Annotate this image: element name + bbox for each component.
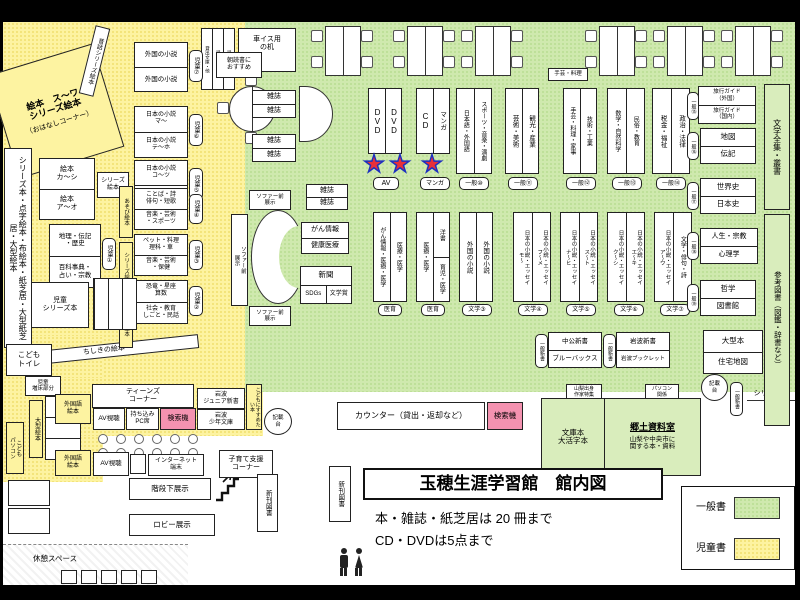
travel-guide-shelf: 旅行ガイド （外国） 旅行ガイド （国内） <box>698 86 756 124</box>
magazines: 雑誌 <box>253 148 295 162</box>
byo-pc-seat: 持ち込み PC席 <box>126 408 159 430</box>
cancer-info: がん情報 <box>302 223 348 238</box>
foreign-novels: 外国の小説 <box>135 43 187 67</box>
iwanami-shonen-bunko: 岩波 少年文庫 <box>197 409 245 430</box>
society-education-folktales: 社会・教育 しごと・民話 <box>135 302 187 324</box>
essays-ku-shi: 日本の小説・エッセイ ク〜シ <box>608 213 626 301</box>
general-16-tag: 一般⑯ <box>687 132 699 160</box>
picture-books-a-o: 絵本 ア〜オ <box>40 189 94 220</box>
morning-reading-recommend: 朝読書に おすすめ <box>216 52 262 78</box>
recommended-for-kids-strip: こどもにすすめたい本 <box>246 384 262 430</box>
locker <box>8 480 50 506</box>
foreign-novels: 外国の小説 <box>476 213 493 301</box>
general-13-tag: 一般⑬ <box>612 177 642 190</box>
new-books-display: 新刊図書 <box>257 474 278 532</box>
local-resources-title: 郷土資料室 <box>630 423 675 432</box>
dinosaur-constellation-math: 恐竜・星座 算数 <box>135 281 187 302</box>
words-poetry-haiku: ことば・詩 俳句・短歌 <box>135 189 187 209</box>
series-braille-picture-books-wall: シリーズ本・点字絵本・布絵本・紙芝居・大型紙芝居・大型絵本 <box>4 148 32 348</box>
children-2-tag: 児童② <box>189 286 203 316</box>
chair <box>585 56 597 68</box>
biographies: 伝記 <box>701 146 755 164</box>
rule-line-1: 本・雑誌・紙芝居は 20 冊まで <box>375 508 553 527</box>
chair <box>721 56 733 68</box>
medical-childcare-tag: 医育 <box>421 304 445 316</box>
reference-books-wall: 参考図書（図鑑・辞書など） <box>764 214 790 426</box>
literature-4-tag: 文学④ <box>518 304 548 316</box>
iwanami-booklet: 岩波ブックレット <box>617 350 669 368</box>
history-shelf: 世界史 日本史 <box>700 178 756 214</box>
essays-a-u: 日本の小説・エッセイ ア〜ウ <box>655 213 673 301</box>
western-books: 洋書 <box>434 213 450 257</box>
chuko-shinsho-shelf: 中公新書 ブルーバックス <box>548 332 602 368</box>
stool <box>170 434 180 444</box>
travel-guide-domestic: 旅行ガイド （国内） <box>699 105 755 124</box>
stool <box>152 434 162 444</box>
chair <box>511 30 523 42</box>
medical-medicine: 医療・医学 <box>417 213 433 301</box>
newspaper: 新聞 <box>301 267 351 285</box>
chair <box>461 56 473 68</box>
legend-children-label: 児童書 <box>696 543 726 555</box>
language-sports-shelf: 日本語・外国語 スポーツ・音楽・演劇 <box>456 88 492 174</box>
literature-6-tag: 文学⑥ <box>614 304 644 316</box>
kotoba-shelf: ことば・詩 俳句・短歌 音楽・芸術 ・スポーツ <box>134 188 188 230</box>
japanese-history: 日本史 <box>701 196 755 214</box>
chair <box>217 102 229 114</box>
chair <box>443 56 455 68</box>
children-3-tag: 児童③ <box>189 240 203 270</box>
large-picture-books-strip: 大型絵本 <box>29 400 43 458</box>
japanese-essay-shelf-4: 日本の小説・エッセイ モ〜 日本の小説・エッセイ フ〜メ <box>513 212 551 302</box>
cd-manga-shelf: CD マンガ <box>416 88 450 154</box>
world-history: 世界史 <box>701 179 755 196</box>
magazine-shelf: 雑誌 雑誌 <box>252 90 296 118</box>
legend: 一般書 児童書 <box>681 486 795 570</box>
sofa-front-display-strip: ソファー前 展示 <box>231 214 248 306</box>
counter: カウンター（貸出・返却など） <box>337 402 485 430</box>
chair <box>771 30 783 42</box>
iwanami-junior-shinsho: 岩波 ジュニア新書 <box>197 388 245 409</box>
children-expansion-label: 児童 増床部分 <box>25 376 61 396</box>
general-11-tag: 一般⑪ <box>508 177 538 190</box>
magazines: 雑誌 <box>307 197 347 210</box>
magazines: 雑誌 <box>307 185 347 197</box>
psychology: 心理学 <box>701 246 757 264</box>
children-6-tag: 児童⑥ <box>189 114 203 146</box>
internet-terminals: インターネット 端末 <box>148 454 204 476</box>
teens-corner-header: ティーンズ コーナー <box>92 384 194 408</box>
newspaper-shelf: 新聞 SDGs 文学賞 <box>300 266 352 304</box>
crafts-cooking-housework: 手芸・料理・家事 <box>564 89 580 173</box>
av-viewing: AV視聴 <box>93 452 129 476</box>
map-title: 玉穂生涯学習館 館内図 <box>363 468 663 500</box>
local-resources-desc: 山梨や中央市に 関する本・資料 <box>630 437 676 451</box>
sdgs-bungakusho-row: SDGs 文学賞 <box>301 285 351 304</box>
bench <box>121 570 137 584</box>
sdgs: SDGs <box>301 286 326 304</box>
magazines: 雑誌 <box>253 135 295 148</box>
lobby-display: ロビー展示 <box>129 514 215 536</box>
literature-5-tag: 文学⑤ <box>566 304 596 316</box>
study-table <box>325 26 361 76</box>
stool <box>116 434 126 444</box>
cancer-medical-shelf: がん情報・医療・医学 医療・医学 <box>373 212 407 302</box>
chair <box>511 56 523 68</box>
pets-cooking-science-cars: ペット・料理 理科・車 <box>135 235 187 255</box>
chair <box>393 30 405 42</box>
kids-computer: こども パソコン <box>6 422 24 474</box>
crafts-cooking-mini-label: 手芸・料理 <box>548 68 588 81</box>
medical-foreign-shelf: 医療・医学 洋書 育児・医学 <box>416 212 450 302</box>
literature-3-tag: 文学③ <box>462 304 492 316</box>
general-12-tag: 一般⑫ <box>566 177 596 190</box>
japanese-novels-ma: 日本の小説 マ〜 <box>135 107 187 132</box>
shelf-bar <box>94 279 108 329</box>
general-17-tag: 一般⑰ <box>687 182 699 210</box>
bookshelf-bars <box>93 278 137 330</box>
math-natural-science: 数学・自然科学 <box>608 89 626 173</box>
essays-su-to: 日本の小説・エッセイ ス〜ト <box>579 213 598 301</box>
manga-tag: マンガ <box>420 177 450 190</box>
children-7-tag: 児童⑦ <box>189 50 203 82</box>
bluebacks: ブルーバックス <box>549 350 601 368</box>
japanese-novels-te-ho: 日本の小説 テ〜ホ <box>135 132 187 158</box>
chair <box>721 30 733 42</box>
magazines: 雑誌 <box>253 104 295 118</box>
map-biography-shelf: 地図 伝記 <box>700 128 756 164</box>
stool <box>188 434 198 444</box>
tax-politics-shelf: 税金・福祉 政治・法律 <box>652 88 690 174</box>
japanese-novels-children-shelf-2: 日本の小説 マ〜 日本の小説 テ〜ホ <box>134 106 188 158</box>
general-14-tag: 一般⑭ <box>656 177 686 190</box>
magazines: 雑誌 <box>253 91 295 104</box>
general-19-tag: 一般⑲ <box>687 284 699 312</box>
chair <box>311 30 323 42</box>
literary-awards: 文学賞 <box>326 286 352 304</box>
children-4-tag: 児童④ <box>189 194 203 224</box>
dvd-strip: DVD <box>385 89 402 153</box>
stool <box>98 434 108 444</box>
magazine-shelf: 雑誌 雑誌 <box>306 184 348 210</box>
essays-e-ki: 日本の小説・エッセイ エ〜キ <box>626 213 645 301</box>
literature-7-tag: 文学⑦ <box>660 304 690 316</box>
essays-mo: 日本の小説・エッセイ モ〜 <box>514 213 532 301</box>
general-shinsho-tag: 一般新書 <box>730 382 743 416</box>
study-table <box>667 26 703 76</box>
stool <box>134 434 144 444</box>
large-books-shelf: 大型本 住宅地図 <box>703 330 763 374</box>
general-shinsho-tag: 一般新書 <box>603 334 616 368</box>
chair <box>361 56 373 68</box>
chair <box>393 56 405 68</box>
cd-strip: CD <box>417 89 433 153</box>
pets-cooking-shelf: ペット・料理 理科・車 音楽・芸術 ・保健 <box>134 234 188 276</box>
residential-maps: 住宅地図 <box>704 352 762 374</box>
bench <box>81 570 97 584</box>
general-15-tag: 一般⑮ <box>687 92 699 120</box>
study-table <box>407 26 443 76</box>
dinosaur-math-shelf: 恐竜・星座 算数 社会・教育 しごと・民話 <box>134 280 188 324</box>
crafts-tech-shelf: 手芸・料理・家事 技術・工業 <box>563 88 597 174</box>
essays-fu-me: 日本の小説・エッセイ フ〜メ <box>532 213 551 301</box>
writing-stand: 記載 台 <box>264 408 292 435</box>
geography-biography-history: 地理・伝記 ・歴史 <box>50 225 100 256</box>
chair <box>653 56 665 68</box>
children-1-tag: 児童① <box>102 238 116 270</box>
music-art-sports: 音楽・芸術 ・スポーツ <box>135 209 187 230</box>
library-floor-map: 絵本 ス〜ワ シリーズ絵本 （おはなしコーナー） 昔話シリーズ絵本 ちしきの絵本… <box>0 0 800 600</box>
kids-toilet: こども トイレ <box>6 344 52 376</box>
dvd-strip: DVD <box>369 89 385 153</box>
picture-books-ka-shi: 絵本 カ〜シ <box>40 159 94 189</box>
study-table <box>475 26 511 76</box>
av-tag: AV <box>373 177 399 190</box>
study-table <box>599 26 635 76</box>
foreign-novels-children-shelf: 外国の小説 外国の小説 <box>134 42 188 92</box>
lending-paperbacks-strip: 貸出文庫・他 <box>202 29 212 89</box>
life-religion-shelf: 人生・宗教 心理学 <box>700 228 758 264</box>
small-cabinet <box>130 454 146 474</box>
sofa-front-display-top: ソファー前 展示 <box>249 190 291 210</box>
children-series-books: 児童 シリーズ本 <box>31 282 89 328</box>
general-10-tag: 一般⑩ <box>459 177 489 190</box>
chair <box>585 30 597 42</box>
study-table <box>735 26 771 76</box>
chair <box>635 30 647 42</box>
legend-children-swatch <box>734 538 780 560</box>
sports-music-theater: スポーツ・音楽・演劇 <box>474 89 492 173</box>
childcare-medicine: 育児・医学 <box>434 257 450 302</box>
legend-general-label: 一般書 <box>696 502 726 514</box>
magazine-shelf: 雑誌 雑誌 <box>252 134 296 162</box>
japanese-novels-ko-tsu: 日本の小説 コ〜ツ <box>135 161 187 185</box>
foreign-novels: 外国の小説 <box>135 67 187 92</box>
picture-books-shelf: 絵本 カ〜シ 絵本 ア〜オ <box>39 158 95 220</box>
japanese-essay-shelf-6: 日本の小説・エッセイ ク〜シ 日本の小説・エッセイ エ〜キ <box>607 212 645 302</box>
writing-stand: 記載 台 <box>701 374 728 401</box>
chair <box>703 30 715 42</box>
medical-childcare-tag: 医育 <box>378 304 402 316</box>
search-terminal: 検索機 <box>160 408 196 430</box>
bench <box>141 570 157 584</box>
math-education-shelf: 数学・自然科学 民俗・教育 <box>607 88 645 174</box>
medical-medicine: 医療・医学 <box>390 213 407 301</box>
bench <box>61 570 77 584</box>
shelf-bar <box>122 279 136 329</box>
shelf-bar <box>108 279 122 329</box>
rest-space-label: 休憩スペース <box>33 553 77 564</box>
chair <box>461 30 473 42</box>
local-resources-room: 文庫本 大活字本 郷土資料室 山梨や中央市に 関する本・資料 <box>541 398 701 476</box>
music-art-health: 音楽・芸術 ・保健 <box>135 255 187 276</box>
philosophy: 哲学 <box>701 281 755 298</box>
art-tourism-shelf: 芸術・美術 観光・産業 <box>505 88 539 174</box>
japanese-foreign-language: 日本語・外国語 <box>457 89 474 173</box>
bench <box>101 570 117 584</box>
philosophy-shelf: 哲学 図書館 <box>700 280 756 316</box>
chair <box>635 56 647 68</box>
kyodo-cell: 郷土資料室 山梨や中央市に 関する本・資料 <box>604 399 700 475</box>
under-stairs-display: 階段下展示 <box>129 478 211 500</box>
legend-general-swatch <box>734 497 780 519</box>
chair <box>653 30 665 42</box>
literature-collections-wall: 文学全集・叢書 <box>764 84 790 210</box>
iwanami-shinsho: 岩波新書 <box>617 333 669 350</box>
search-terminal: 検索機 <box>487 402 523 430</box>
library-science: 図書館 <box>701 298 755 316</box>
chair <box>311 56 323 68</box>
general-18-tag: 一般⑱ <box>687 232 699 260</box>
japanese-essay-shelf-5: 日本の小説・エッセイ ナ〜ヒ 日本の小説・エッセイ ス〜ト <box>560 212 598 302</box>
general-shinsho-tag: 一般新書 <box>535 334 548 368</box>
map-canvas: 絵本 ス〜ワ シリーズ絵本 （おはなしコーナー） 昔話シリーズ絵本 ちしきの絵本… <box>3 22 795 585</box>
foreign-novels-shelf: 外国の小説 外国の小説 <box>459 212 493 302</box>
chair <box>443 30 455 42</box>
foreign-picture-books-tag: 外国語 絵本 <box>55 450 91 476</box>
yosho-ikuji-strip: 洋書 育児・医学 <box>433 213 450 301</box>
iwanami-shinsho-shelf: 岩波新書 岩波ブックレット <box>616 332 670 368</box>
dvd-shelf: DVD DVD <box>368 88 402 154</box>
new-books-display: 新刊図書 <box>329 466 351 522</box>
chair <box>703 56 715 68</box>
legend-general-row: 一般書 <box>696 497 780 519</box>
chair <box>361 30 373 42</box>
tourism-industry: 観光・産業 <box>522 89 539 173</box>
travel-guide-foreign: 旅行ガイド （外国） <box>699 87 755 105</box>
manga-strip: マンガ <box>433 89 450 153</box>
art-fine-arts: 芸術・美術 <box>506 89 522 173</box>
health-medical: 健康医療 <box>302 238 348 254</box>
sofa-front-display-bottom: ソファー前 展示 <box>249 306 291 326</box>
foreign-picture-books-tag: 外国語 絵本 <box>55 394 91 424</box>
tax-welfare: 税金・福祉 <box>653 89 671 173</box>
cancer-info-shelf: がん情報 健康医療 <box>301 222 349 254</box>
maps: 地図 <box>701 129 755 146</box>
essays-na-hi: 日本の小説・エッセイ ナ〜ヒ <box>561 213 579 301</box>
foreign-novels: 外国の小説 <box>460 213 476 301</box>
restroom-icon <box>337 546 369 580</box>
chuko-shinsho: 中公新書 <box>549 333 601 350</box>
wheelchair-desk-label: 車イス用 の机 <box>253 36 281 52</box>
technology-industry: 技術・工業 <box>580 89 597 173</box>
cancer-info-medical: がん情報・医療・医学 <box>374 213 390 301</box>
bunkobon-cell: 文庫本 大活字本 <box>542 399 604 475</box>
large-books: 大型本 <box>704 331 762 352</box>
av-viewing: AV視聴 <box>93 408 125 430</box>
rule-line-2: CD・DVDは5点まで <box>375 530 493 549</box>
locker <box>8 508 50 534</box>
legend-children-row: 児童書 <box>696 538 780 560</box>
chair <box>771 56 783 68</box>
life-religion: 人生・宗教 <box>701 229 757 246</box>
folklore-education: 民俗・教育 <box>626 89 645 173</box>
play-picture-books-strip: あそび絵本 <box>119 186 133 238</box>
